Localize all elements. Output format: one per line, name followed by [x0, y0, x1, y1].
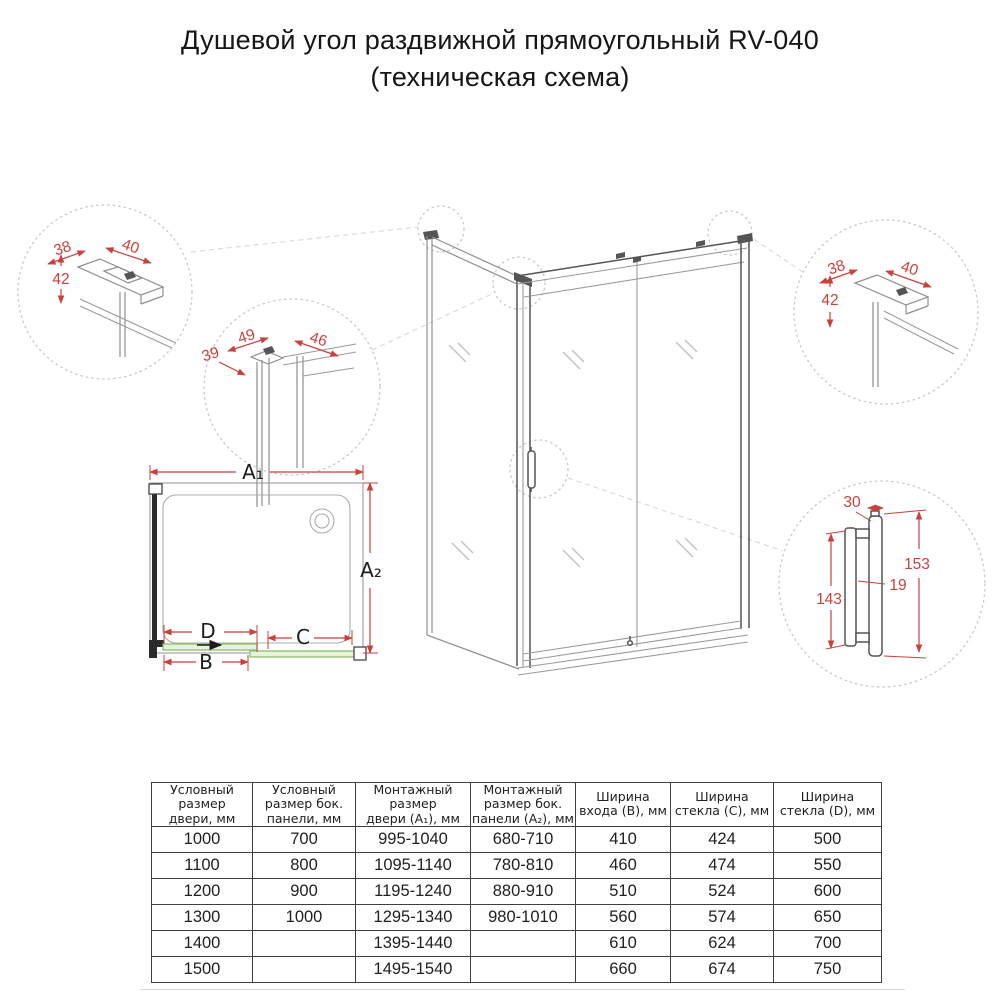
table-cell: 1200 — [152, 878, 253, 904]
column-header: Условный размер двери, мм — [152, 783, 253, 827]
table-cell — [471, 930, 576, 956]
leader-lines — [191, 227, 803, 551]
table-row: 130010001295-1340980-1010560574650 — [152, 904, 882, 930]
table-cell: 574 — [671, 904, 774, 930]
dim-143-handle: 143 — [816, 591, 842, 608]
table-row: 11008001095-1140780-810460474550 — [152, 852, 882, 878]
table-cell: 524 — [671, 878, 774, 904]
column-header: Ширина стекла (D), мм — [774, 783, 882, 827]
table-cell: 650 — [774, 904, 882, 930]
plan-label-c: C — [296, 625, 310, 649]
table-cell: 680-710 — [471, 826, 576, 852]
table-cell: 980-1010 — [471, 904, 576, 930]
table-cell: 1500 — [152, 956, 253, 982]
table-cell: 1395-1440 — [356, 930, 471, 956]
plan-view: A₁ A₂ D C B — [149, 460, 382, 674]
bottom-separator — [140, 989, 905, 990]
table-cell: 500 — [774, 826, 882, 852]
table-cell: 624 — [671, 930, 774, 956]
table-cell: 1000 — [253, 904, 356, 930]
table-cell: 800 — [253, 852, 356, 878]
table-cell — [253, 956, 356, 982]
table-cell: 780-810 — [471, 852, 576, 878]
table-cell: 424 — [671, 826, 774, 852]
column-header: Ширина стекла (C), мм — [671, 783, 774, 827]
table-cell: 700 — [253, 826, 356, 852]
dim-38-top-right: 38 — [826, 257, 848, 279]
table-row: 14001395-1440610624700 — [152, 930, 882, 956]
plan-label-a1: A₁ — [242, 460, 264, 484]
table-cell: 600 — [774, 878, 882, 904]
table-cell: 460 — [576, 852, 671, 878]
plan-label-d: D — [200, 619, 215, 643]
dim-30-handle: 30 — [843, 494, 861, 511]
wall-profile-top — [149, 484, 162, 494]
detail-circle-mid-left: 49 39 46 — [200, 299, 380, 507]
table-cell: 1400 — [152, 930, 253, 956]
table-cell: 995-1040 — [356, 826, 471, 852]
table-row: 1000700995-1040680-710410424500 — [152, 826, 882, 852]
table-body: 1000700995-1040680-710410424500110080010… — [152, 826, 882, 982]
table-cell — [471, 956, 576, 982]
table-cell: 1300 — [152, 904, 253, 930]
table-cell: 1295-1340 — [356, 904, 471, 930]
table-cell: 750 — [774, 956, 882, 982]
table-cell: 1100 — [152, 852, 253, 878]
dim-46-mid-left: 46 — [308, 329, 330, 350]
dim-153-handle: 153 — [904, 556, 930, 573]
size-table: Условный размер двери, ммУсловный размер… — [151, 782, 882, 983]
callout-rings — [418, 206, 752, 498]
column-header: Монтажный размер бок. панели (A₂), мм — [471, 783, 576, 827]
plan-label-a2: A₂ — [360, 558, 382, 582]
table-cell: 610 — [576, 930, 671, 956]
detail-circle-top-right: 38 40 42 — [794, 220, 978, 404]
detail-circle-top-left: 38 40 42 — [18, 205, 192, 379]
glass-reflections — [449, 340, 697, 567]
dim-19-handle: 19 — [889, 577, 906, 594]
glass-panel-c — [250, 651, 356, 657]
table-cell: 550 — [774, 852, 882, 878]
dim-39-mid-left: 39 — [200, 344, 222, 365]
table-cell: 410 — [576, 826, 671, 852]
detail-circle-handle: 30 153 19 143 — [779, 481, 985, 687]
main-drawing — [423, 230, 753, 675]
column-header: Монтажный размер двери (A₁), мм — [356, 783, 471, 827]
table-cell: 674 — [671, 956, 774, 982]
table-row: 12009001195-1240880-910510524600 — [152, 878, 882, 904]
table-header-row: Условный размер двери, ммУсловный размер… — [152, 783, 882, 827]
table-cell — [253, 930, 356, 956]
side-panel-glass-plan — [152, 494, 157, 640]
column-header: Условный размер бок. панели, мм — [253, 783, 356, 827]
door-handle — [528, 447, 535, 492]
table-cell: 660 — [576, 956, 671, 982]
table-cell: 1195-1240 — [356, 878, 471, 904]
dim-42-top-right: 42 — [821, 292, 838, 309]
table-cell: 880-910 — [471, 878, 576, 904]
table-cell: 900 — [253, 878, 356, 904]
dim-42-top-left: 42 — [52, 271, 69, 288]
dim-49-mid-left: 49 — [236, 326, 258, 347]
table-cell: 1495-1540 — [356, 956, 471, 982]
table-cell: 1000 — [152, 826, 253, 852]
column-header: Ширина входа (B), мм — [576, 783, 671, 827]
table-row: 15001495-1540660674750 — [152, 956, 882, 982]
table-cell: 700 — [774, 930, 882, 956]
table-cell: 510 — [576, 878, 671, 904]
table-cell: 474 — [671, 852, 774, 878]
table-cell: 560 — [576, 904, 671, 930]
dim-40-top-left: 40 — [120, 236, 142, 258]
table-cell: 1095-1140 — [356, 852, 471, 878]
plan-label-b: B — [199, 650, 213, 674]
